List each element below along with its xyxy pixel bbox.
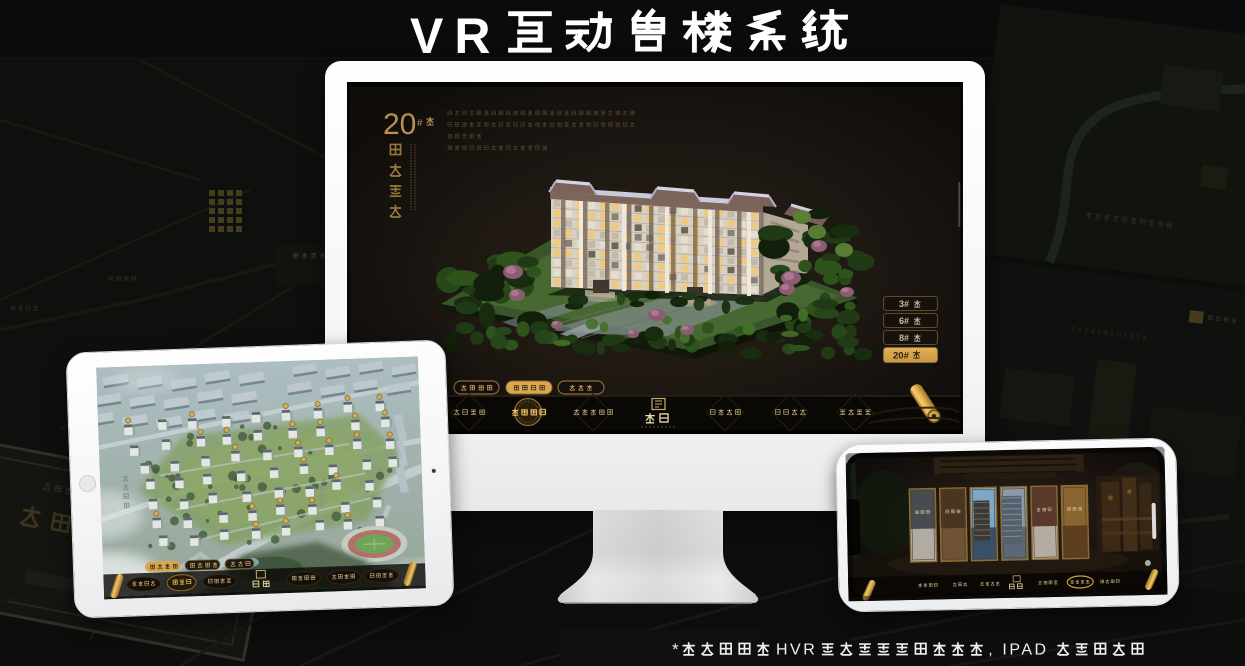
svg-text:20#: 20# (893, 351, 910, 362)
svg-text:*: * (672, 640, 679, 659)
svg-text:20: 20 (383, 108, 416, 141)
svg-text:3#: 3# (899, 299, 909, 309)
svg-text:VR: VR (410, 8, 501, 64)
svg-text:8#: 8# (899, 333, 909, 343)
svg-text:6#: 6# (899, 316, 909, 326)
svg-text:IPAD: IPAD (1002, 642, 1048, 659)
svg-text:HVR: HVR (776, 642, 817, 659)
svg-text:,: , (988, 642, 992, 659)
svg-text:#: # (417, 118, 423, 129)
